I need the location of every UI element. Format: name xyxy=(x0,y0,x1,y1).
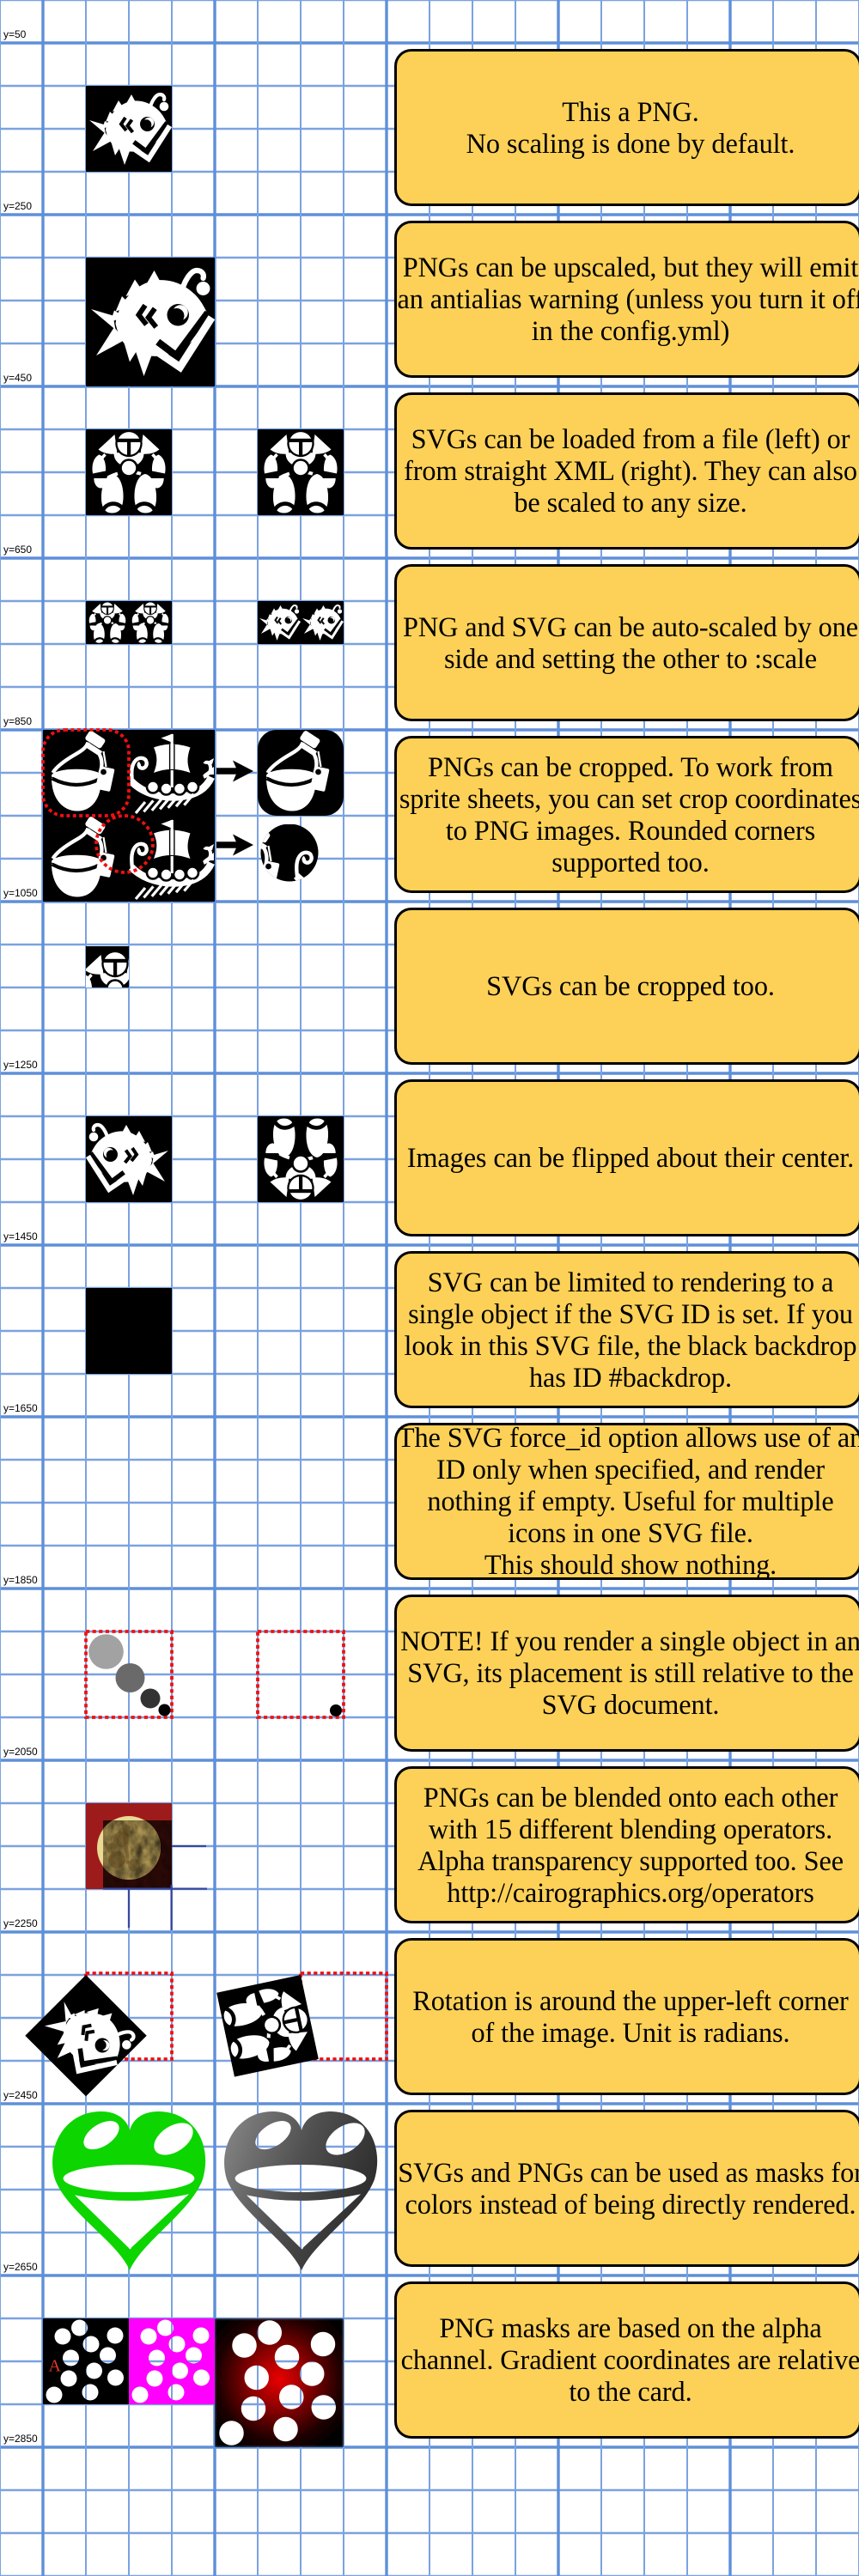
svg-text:A: A xyxy=(49,2357,62,2376)
